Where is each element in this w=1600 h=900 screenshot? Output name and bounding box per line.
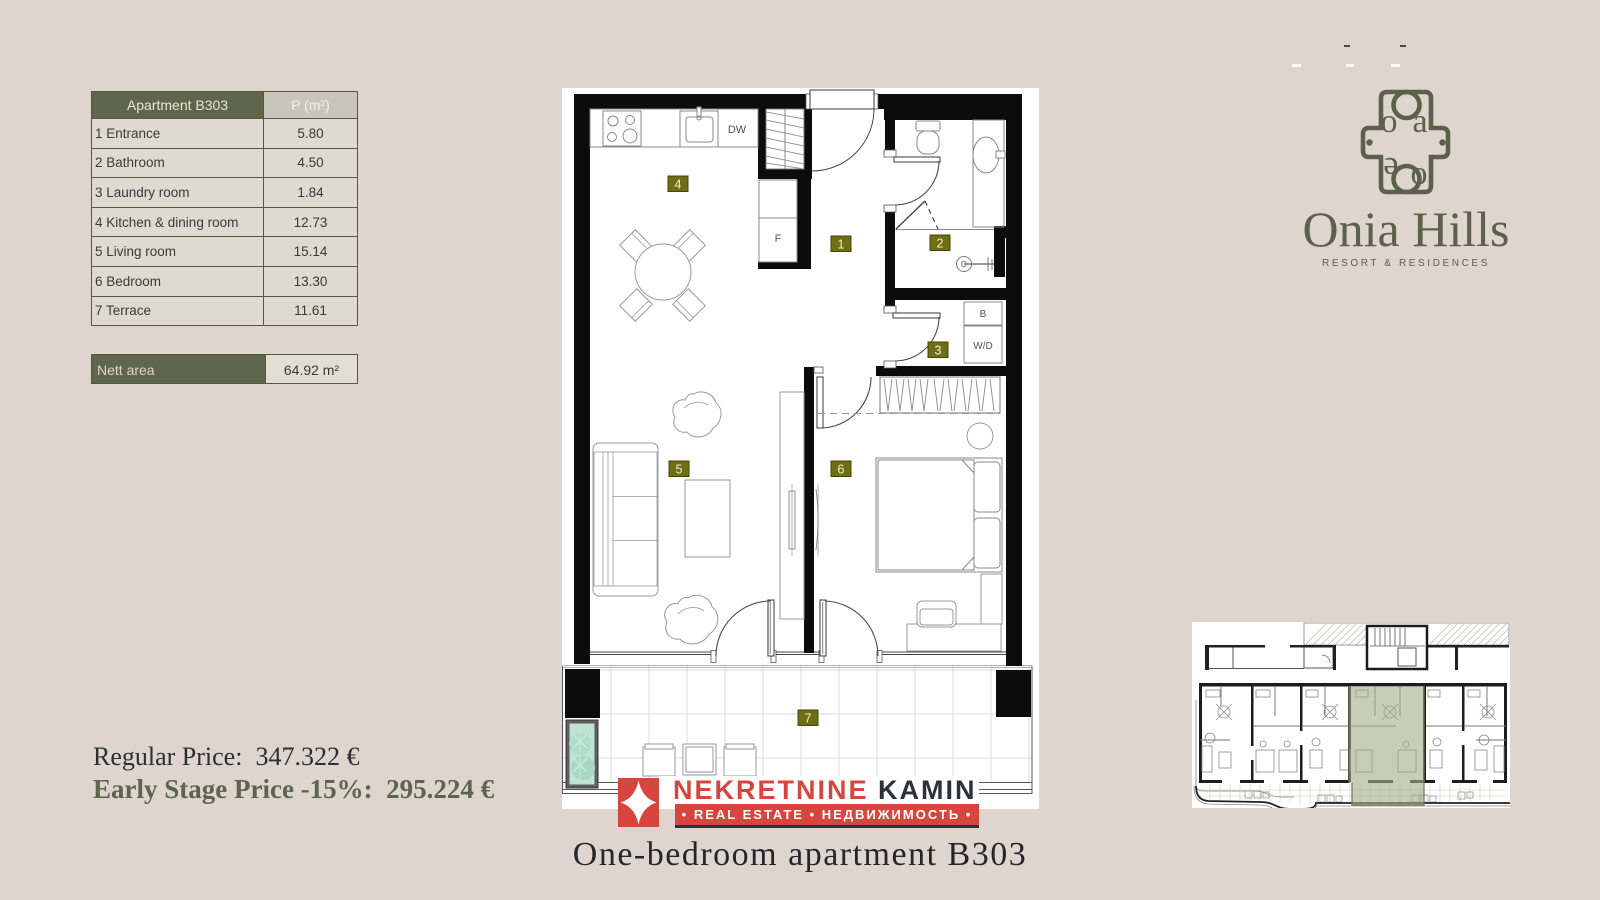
svg-text:B: B	[980, 309, 987, 320]
svg-text:5: 5	[676, 463, 683, 477]
svg-text:1: 1	[838, 238, 845, 252]
svg-text:3: 3	[935, 344, 942, 358]
svg-text:4: 4	[675, 178, 682, 192]
svg-text:W/D: W/D	[973, 341, 992, 352]
svg-text:2: 2	[937, 237, 944, 251]
svg-text:6: 6	[838, 463, 845, 477]
svg-text:7: 7	[805, 712, 812, 726]
svg-text:F: F	[775, 233, 782, 245]
svg-text:DW: DW	[728, 124, 747, 136]
